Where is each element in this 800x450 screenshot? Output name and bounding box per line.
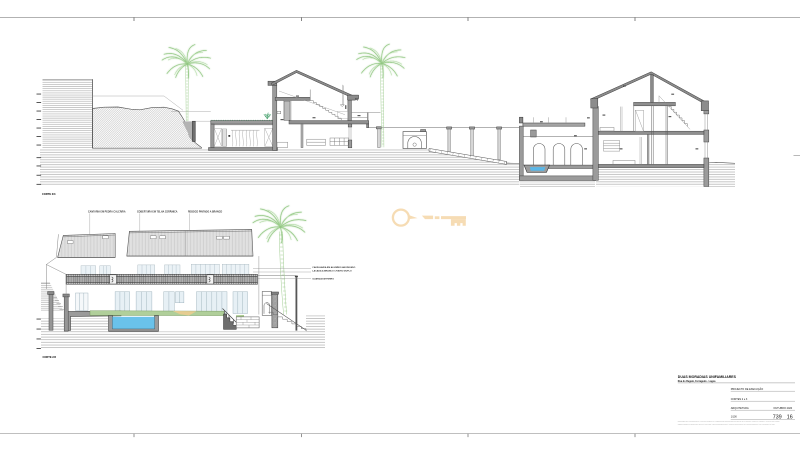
svg-text:Rua do Regato, Ferragudo - Lag: Rua do Regato, Ferragudo - Lagoa [678, 380, 716, 383]
svg-text:CAIXILHARIA EM ALUMÍNIO ANODIZ: CAIXILHARIA EM ALUMÍNIO ANODIZADO [312, 266, 355, 269]
svg-text:OUTUBRO 2020: OUTUBRO 2020 [773, 407, 792, 410]
svg-text:CORTES 2 e 3: CORTES 2 e 3 [731, 398, 748, 401]
svg-text:REBOCO PINTADO A BRANCO: REBOCO PINTADO A BRANCO [188, 210, 222, 213]
svg-text:DUAS MORADIAS UNIFAMILIARES: DUAS MORADIAS UNIFAMILIARES [678, 375, 737, 379]
svg-text:LACADA A BRANCO C/VIDRO DUPLO: LACADA A BRANCO C/VIDRO DUPLO [312, 269, 352, 272]
svg-text:CORTE 2/3: CORTE 2/3 [43, 355, 57, 359]
svg-text:CANTARIA EM PEDRA CALCÁRIA: CANTARIA EM PEDRA CALCÁRIA [88, 210, 126, 213]
svg-text:GUARDA EM FERRO: GUARDA EM FERRO [312, 278, 334, 281]
svg-text:1/100: 1/100 [731, 416, 738, 419]
svg-text:ESTE DESENHO E PROPRIEDADE DO: ESTE DESENHO E PROPRIEDADE DO AUTOR DO P… [678, 420, 780, 423]
svg-text:PROJECTO DE EXECUÇÃO: PROJECTO DE EXECUÇÃO [731, 388, 764, 391]
svg-text:COBERTURA EM TELHA CERÂMICA: COBERTURA EM TELHA CERÂMICA [137, 210, 178, 213]
svg-text:ARQUITETURA: ARQUITETURA [731, 407, 749, 410]
svg-text:CORTE 2/3: CORTE 2/3 [42, 192, 56, 196]
